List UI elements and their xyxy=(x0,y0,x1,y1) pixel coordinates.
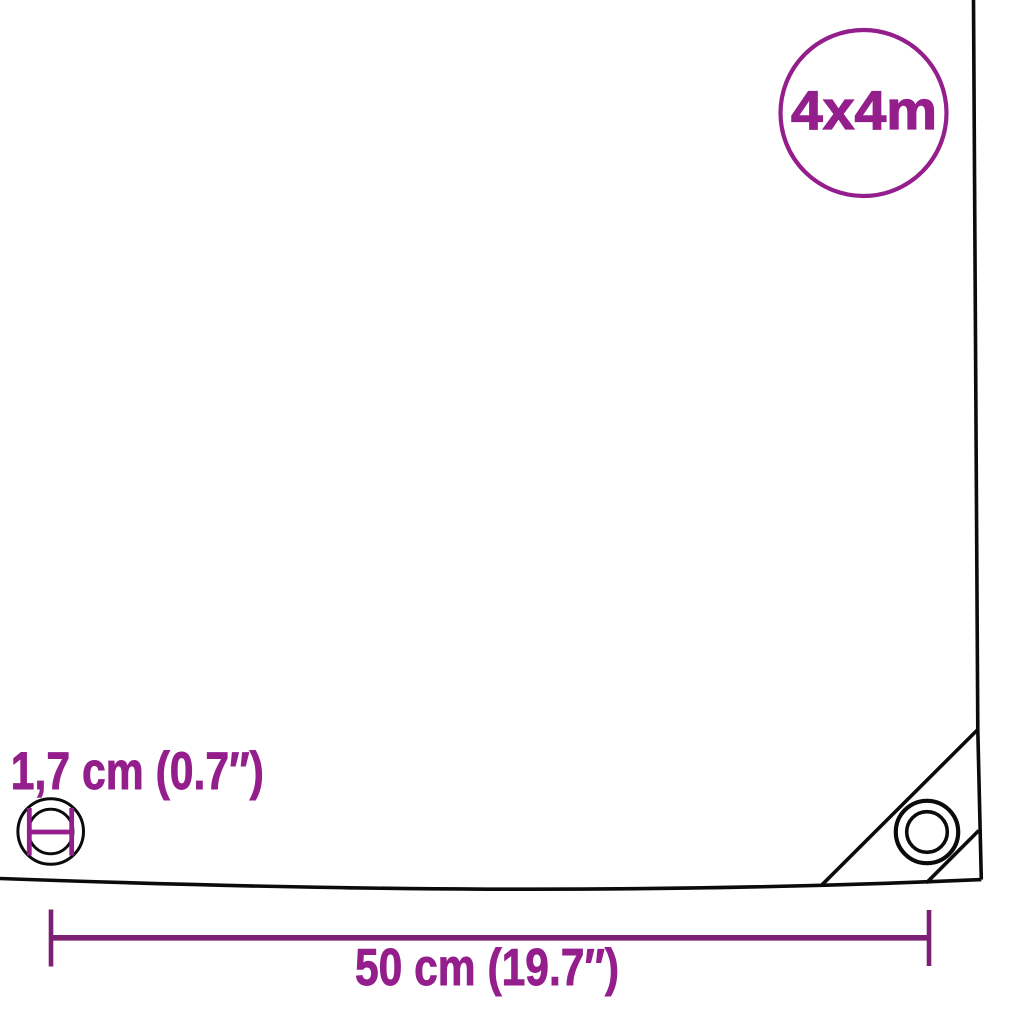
svg-text:1,7 cm (0.7″): 1,7 cm (0.7″) xyxy=(11,742,264,801)
svg-text:50 cm (19.7″): 50 cm (19.7″) xyxy=(355,939,619,997)
svg-text:4x4m: 4x4m xyxy=(791,79,937,141)
